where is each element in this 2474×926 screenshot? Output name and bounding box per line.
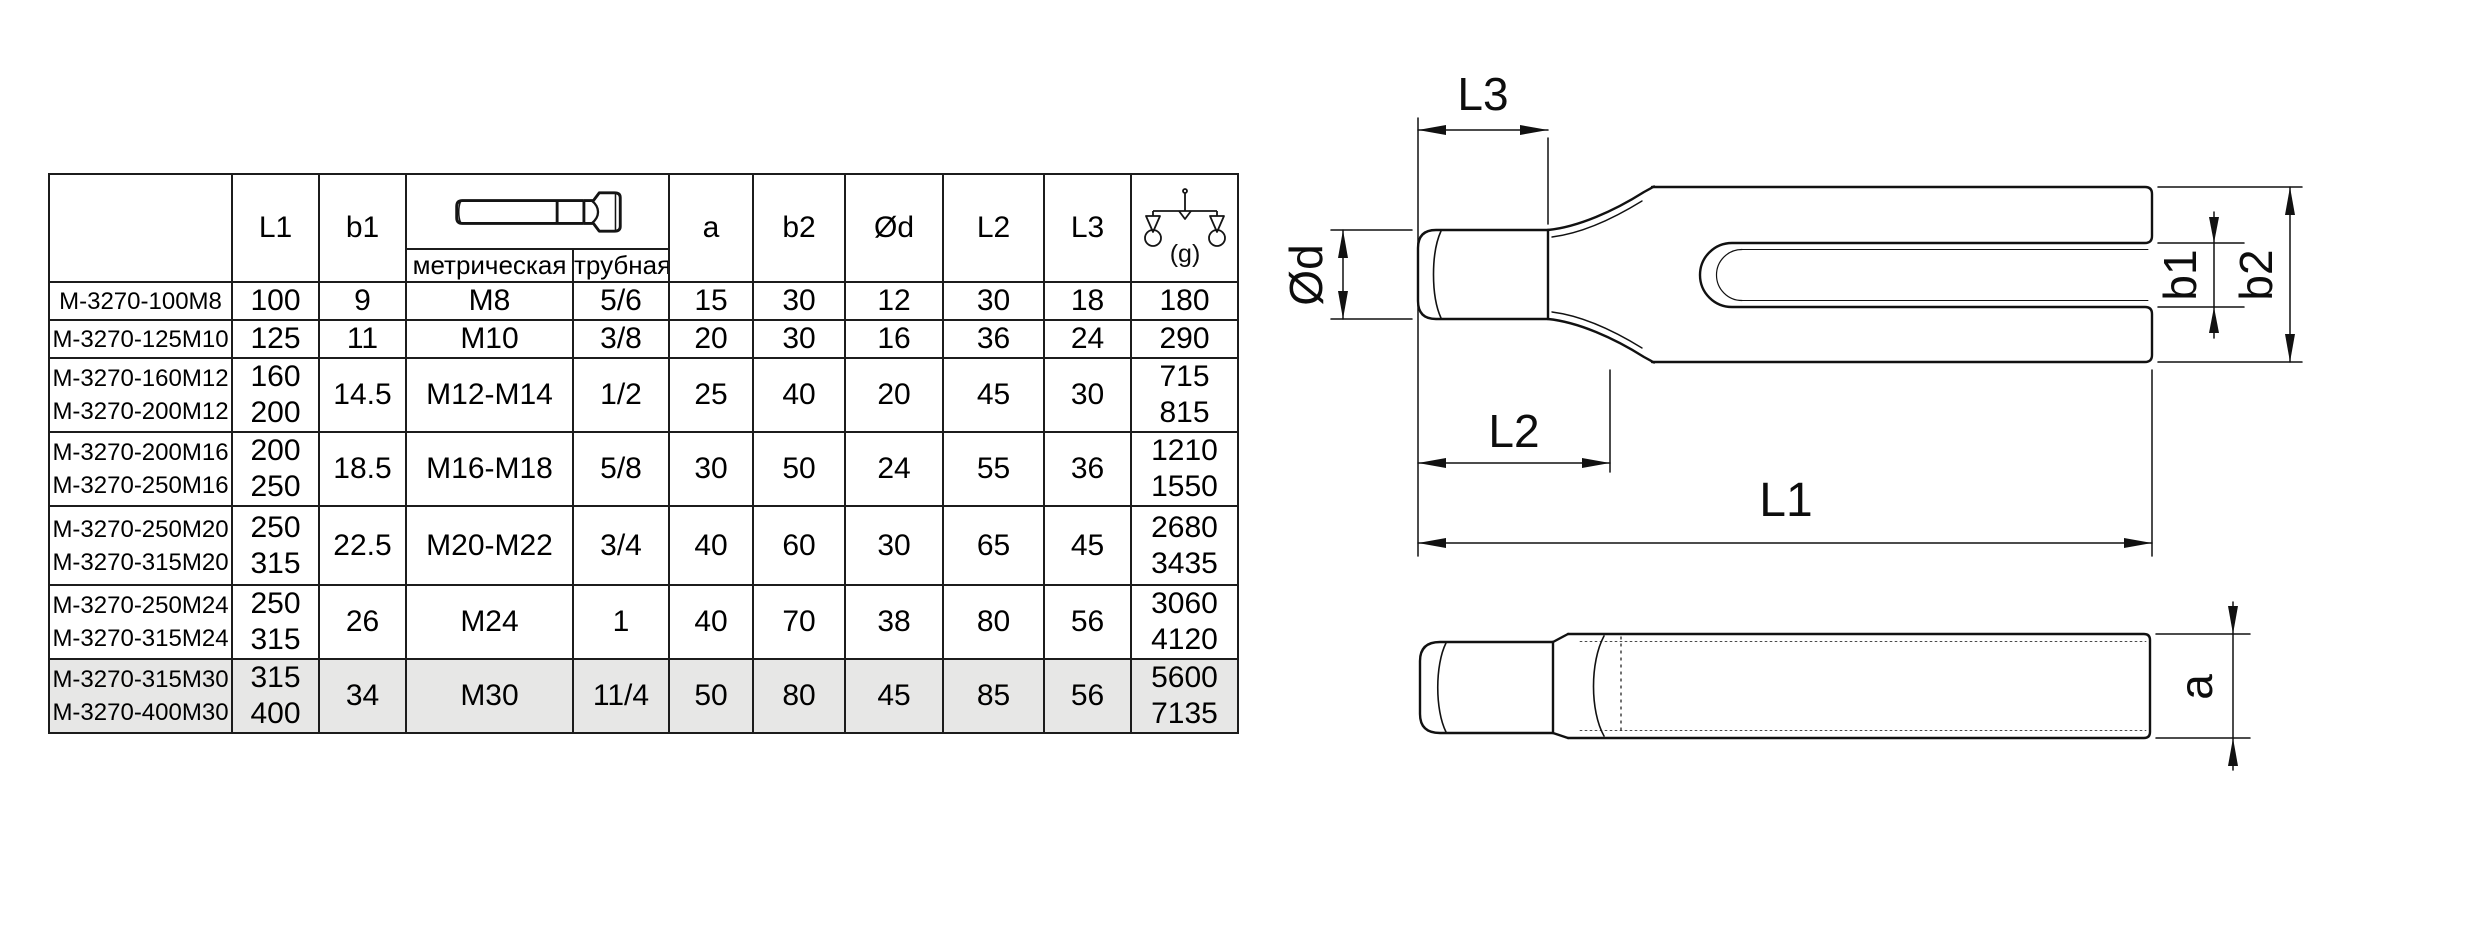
table-row: M-3270-160M12M-3270-200M12 160200 14.5 M… [49,358,1238,432]
cell-L3: 56 [1044,659,1131,733]
dim-label-L2: L2 [1488,405,1539,457]
cell-metric-thread: M16-M18 [406,432,573,506]
table-row: M-3270-125M10 125 11 M10 3/8 20 30 16 36… [49,320,1238,358]
table-row: M-3270-100M8 100 9 M8 5/6 15 30 12 30 18… [49,282,1238,320]
cell-L1: 100 [232,282,319,320]
dim-label-b1: b1 [2154,249,2206,300]
fork-top-view-drawing [1418,187,2152,363]
cell-d: 20 [845,358,943,432]
cell-metric-thread: M8 [406,282,573,320]
cell-L2: 55 [943,432,1044,506]
col-header-b2: b2 [753,174,845,282]
cell-b1: 9 [319,282,406,320]
cell-weight: 290 [1131,320,1238,358]
cell-d: 45 [845,659,943,733]
cell-part-number: M-3270-250M24M-3270-315M24 [49,585,232,659]
cell-L1: 250315 [232,506,319,585]
cell-weight: 715815 [1131,358,1238,432]
cell-b1: 14.5 [319,358,406,432]
cell-pipe-thread: 11/4 [573,659,669,733]
cell-L3: 56 [1044,585,1131,659]
cell-a: 30 [669,432,753,506]
dim-label-d: Ød [1280,244,1332,305]
cell-a: 50 [669,659,753,733]
cell-L1: 250315 [232,585,319,659]
cell-L2: 85 [943,659,1044,733]
cell-weight: 26803435 [1131,506,1238,585]
col-header-L2: L2 [943,174,1044,282]
cell-metric-thread: M12-M14 [406,358,573,432]
cell-b1: 11 [319,320,406,358]
cell-L1: 160200 [232,358,319,432]
cell-b1: 26 [319,585,406,659]
table-row: M-3270-200M16M-3270-250M16 200250 18.5 M… [49,432,1238,506]
cell-a: 25 [669,358,753,432]
cell-weight: 12101550 [1131,432,1238,506]
cell-metric-thread: M20-M22 [406,506,573,585]
cell-weight: 30604120 [1131,585,1238,659]
cell-pipe-thread: 3/8 [573,320,669,358]
cell-d: 38 [845,585,943,659]
dim-label-b2: b2 [2230,249,2282,300]
cell-d: 12 [845,282,943,320]
cell-d: 24 [845,432,943,506]
cell-a: 20 [669,320,753,358]
cell-metric-thread: M10 [406,320,573,358]
col-subheader-pipe: трубная [573,249,669,282]
cell-b2: 50 [753,432,845,506]
table-row: M-3270-250M24M-3270-315M24 250315 26 M24… [49,585,1238,659]
cell-part-number: M-3270-160M12M-3270-200M12 [49,358,232,432]
dim-label-L3: L3 [1457,68,1508,120]
cell-part-number: M-3270-125M10 [49,320,232,358]
col-header-b1: b1 [319,174,406,282]
cell-b1: 22.5 [319,506,406,585]
side-view-dimensions [2156,602,2250,770]
cell-pipe-thread: 5/6 [573,282,669,320]
cell-L2: 45 [943,358,1044,432]
table-row-highlighted: M-3270-315M30M-3270-400M30 315400 34 M30… [49,659,1238,733]
cell-L2: 30 [943,282,1044,320]
cell-pipe-thread: 1/2 [573,358,669,432]
cell-b2: 70 [753,585,845,659]
cell-b2: 80 [753,659,845,733]
cell-L2: 80 [943,585,1044,659]
weight-unit-label: (g) [1169,240,1200,268]
fork-side-view-drawing [1420,634,2150,738]
cell-d: 16 [845,320,943,358]
cell-b2: 60 [753,506,845,585]
cell-pipe-thread: 5/8 [573,432,669,506]
cell-pipe-thread: 3/4 [573,506,669,585]
cell-part-number: M-3270-100M8 [49,282,232,320]
cell-a: 15 [669,282,753,320]
col-header-L1: L1 [232,174,319,282]
cell-part-number: M-3270-250M20M-3270-315M20 [49,506,232,585]
col-header-a: a [669,174,753,282]
cell-b2: 30 [753,320,845,358]
cell-L2: 65 [943,506,1044,585]
cell-L3: 18 [1044,282,1131,320]
cell-b2: 40 [753,358,845,432]
cell-L1: 315400 [232,659,319,733]
cell-a: 40 [669,506,753,585]
col-header-weight: (g) [1131,174,1238,282]
cell-b1: 34 [319,659,406,733]
cell-part-number: M-3270-315M30M-3270-400M30 [49,659,232,733]
cell-L3: 24 [1044,320,1131,358]
cell-L3: 45 [1044,506,1131,585]
cell-weight: 56007135 [1131,659,1238,733]
t-bolt-icon [450,183,626,241]
cell-b1: 18.5 [319,432,406,506]
cell-pipe-thread: 1 [573,585,669,659]
dim-label-a: a [2170,674,2222,700]
part-number-column-header [49,174,232,282]
catalog-page: L1 b1 [0,0,2474,926]
col-header-L3: L3 [1044,174,1131,282]
cell-part-number: M-3270-200M16M-3270-250M16 [49,432,232,506]
spec-table: L1 b1 [48,173,1239,734]
table-row: M-3270-250M20M-3270-315M20 250315 22.5 M… [49,506,1238,585]
cell-metric-thread: M30 [406,659,573,733]
top-view-dimensions [1331,118,2302,556]
cell-metric-thread: M24 [406,585,573,659]
cell-L3: 30 [1044,358,1131,432]
cell-a: 40 [669,585,753,659]
cell-L3: 36 [1044,432,1131,506]
cell-b2: 30 [753,282,845,320]
col-subheader-metric: метрическая [406,249,573,282]
col-header-thread [406,174,669,249]
dim-label-L1: L1 [1759,474,1812,527]
cell-weight: 180 [1131,282,1238,320]
cell-L2: 36 [943,320,1044,358]
cell-L1: 200250 [232,432,319,506]
balance-scale-icon: (g) [1142,186,1228,270]
col-header-d: Ød [845,174,943,282]
cell-L1: 125 [232,320,319,358]
cell-d: 30 [845,506,943,585]
